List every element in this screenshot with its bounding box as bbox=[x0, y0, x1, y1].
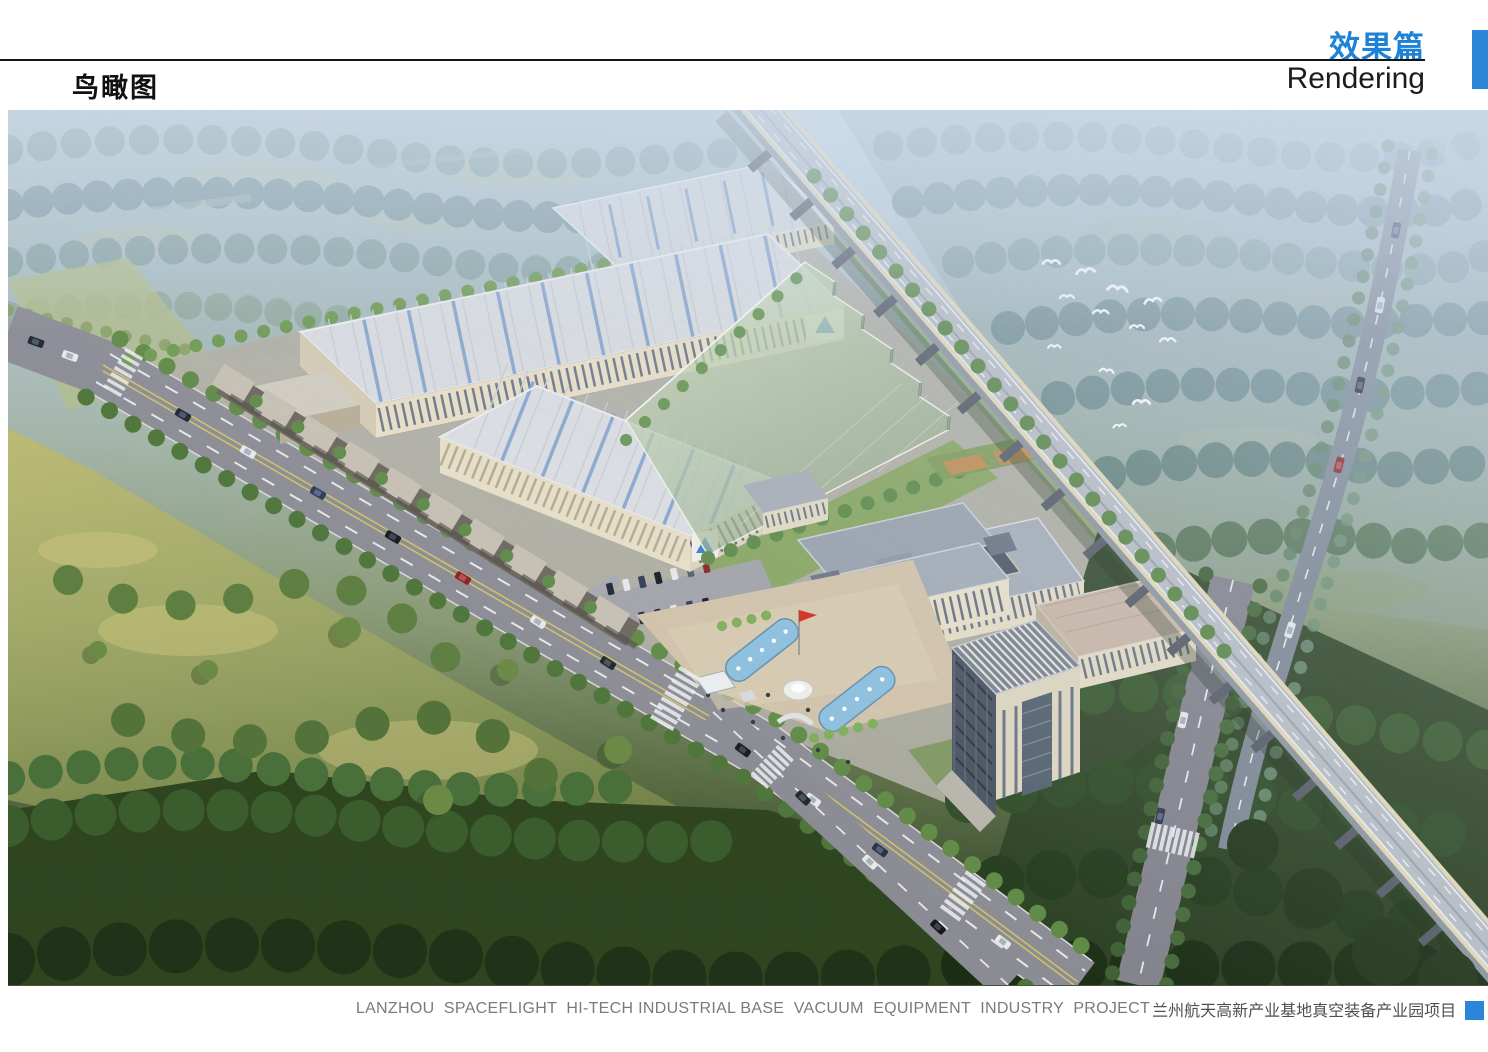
header-accent-bar bbox=[1472, 30, 1488, 89]
footer-accent-square bbox=[1465, 1001, 1484, 1020]
footer-caption-en: LANZHOU SPACEFLIGHT HI-TECH INDUSTRIAL B… bbox=[356, 1000, 1150, 1018]
aerial-rendering-image bbox=[8, 110, 1488, 986]
section-title-en: Rendering bbox=[1287, 62, 1425, 96]
presentation-page: 效果篇 鸟瞰图 Rendering bbox=[0, 0, 1488, 1052]
header-rule bbox=[0, 59, 1425, 61]
top-haze bbox=[8, 110, 1488, 330]
footer-caption-zh: 兰州航天高新产业基地真空装备产业园项目 bbox=[1152, 997, 1456, 1021]
page-footer: LANZHOU SPACEFLIGHT HI-TECH INDUSTRIAL B… bbox=[176, 997, 1488, 1021]
aerial-rendering bbox=[8, 110, 1488, 985]
page-title: 鸟瞰图 bbox=[72, 66, 159, 105]
